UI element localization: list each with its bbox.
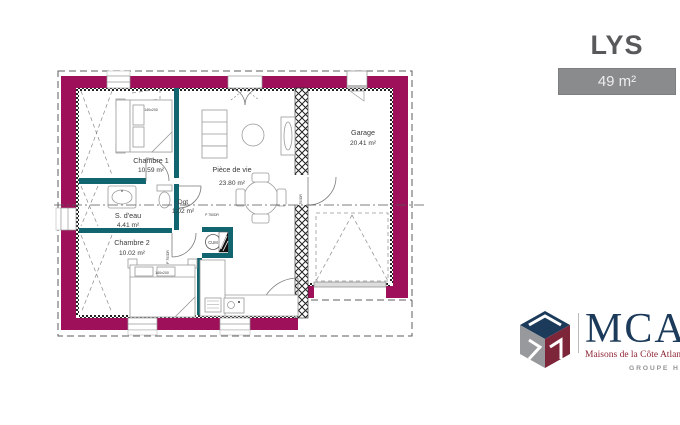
label-chambre2-area: 10.02 m² <box>119 250 146 257</box>
brand-group: GROUPE HEXAÔM <box>629 365 680 372</box>
mca-logo-icon <box>517 309 573 371</box>
bed-chambre2 <box>128 259 197 317</box>
furniture <box>108 99 388 317</box>
kitchen-counter <box>200 260 298 316</box>
label-dgt-area: 1.02 m² <box>172 208 195 215</box>
label-dgt-name: Dgt <box>178 199 188 206</box>
label-door-ref-2: P 750DR <box>299 194 303 208</box>
label-chambre1-area: 10.59 m² <box>138 167 165 174</box>
label-cum: CUM <box>208 240 218 245</box>
brand-subtitle: Maisons de la Côte Atlantique <box>585 350 680 360</box>
page: { "header": { "title": "LYS", "area_badg… <box>0 0 680 425</box>
garage-door <box>314 213 388 287</box>
label-chambre1-name: Chambre 1 <box>133 156 169 165</box>
plan-header: LYS 49 m² <box>558 30 676 95</box>
logo-divider <box>578 313 579 353</box>
label-sdeau-area: 4.41 m² <box>117 222 140 229</box>
label-bed1-size: 140x200 <box>144 108 158 112</box>
label-door-ref-3: P 750DR <box>166 250 170 264</box>
label-sejour-name: Pièce de vie <box>212 165 251 174</box>
side-table <box>242 124 264 146</box>
label-chambre2-name: Chambre 2 <box>114 238 150 247</box>
floor-plan: Chambre 1 10.59 m² S. d'eau 4.41 m² Cham… <box>50 55 428 353</box>
label-bed2-size: 140x200 <box>155 271 169 275</box>
toilet <box>157 185 172 208</box>
brand-name: MCA <box>585 309 680 349</box>
model-title: LYS <box>558 30 676 61</box>
tall-cabinet <box>281 117 295 155</box>
shelf-unit <box>202 110 227 158</box>
label-door-ref-1: P 750DR <box>205 213 219 217</box>
area-badge: 49 m² <box>558 68 676 95</box>
label-sdeau-name: S. d'eau <box>115 211 141 220</box>
label-sejour-area: 23.80 m² <box>219 180 246 187</box>
brand-block: MCA Maisons de la Côte Atlantique GROUPE… <box>517 309 680 372</box>
label-garage-area: 20.41 m² <box>350 140 377 147</box>
label-garage-name: Garage <box>351 128 375 137</box>
